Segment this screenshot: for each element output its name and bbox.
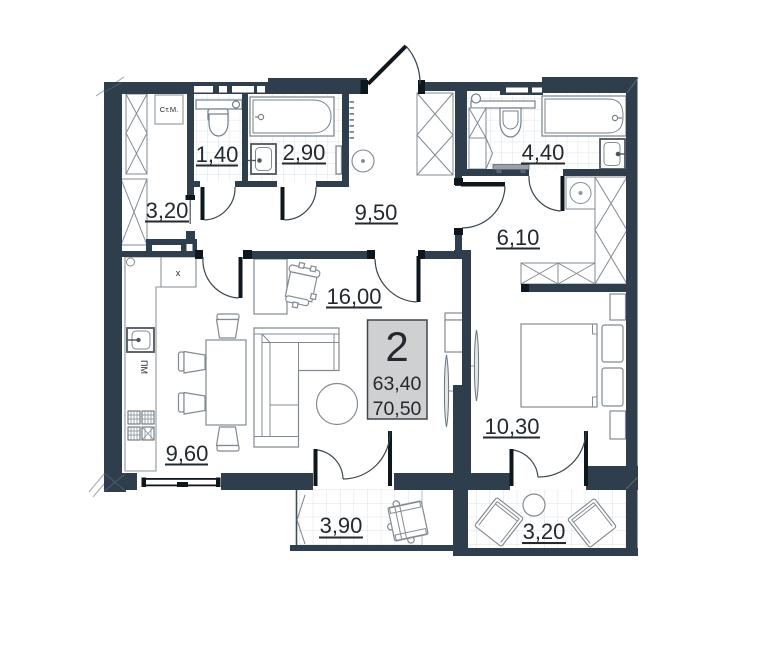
- svg-text:3,20: 3,20: [146, 198, 189, 223]
- svg-text:Ст.М.: Ст.М.: [160, 105, 178, 114]
- svg-text:9,50: 9,50: [355, 200, 398, 225]
- svg-text:2: 2: [385, 323, 408, 370]
- svg-text:1,40: 1,40: [196, 142, 239, 167]
- svg-text:70,50: 70,50: [373, 398, 422, 420]
- svg-text:63,40: 63,40: [373, 373, 422, 395]
- svg-text:6,10: 6,10: [497, 225, 540, 250]
- svg-text:3,20: 3,20: [523, 519, 566, 544]
- svg-text:16,00: 16,00: [326, 284, 381, 309]
- svg-text:9,60: 9,60: [166, 441, 209, 466]
- svg-text:10,30: 10,30: [484, 414, 539, 439]
- svg-text:2,90: 2,90: [283, 140, 326, 165]
- svg-text:x: x: [176, 268, 181, 278]
- svg-text:4,40: 4,40: [522, 140, 565, 165]
- svg-text:3,90: 3,90: [320, 513, 363, 538]
- svg-text:ПМ: ПМ: [139, 360, 149, 374]
